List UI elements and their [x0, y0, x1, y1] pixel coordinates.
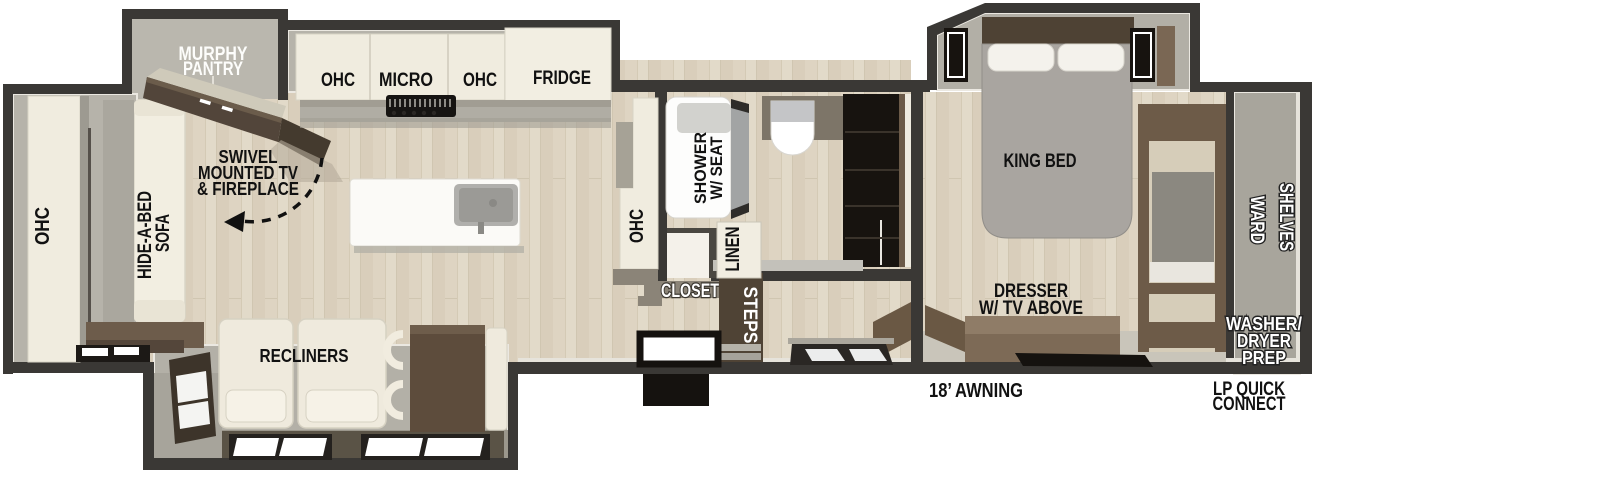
svg-text:OHC: OHC: [463, 70, 497, 91]
svg-text:PREP: PREP: [1242, 348, 1286, 368]
svg-text:CONNECT: CONNECT: [1213, 394, 1286, 415]
svg-text:STEPS: STEPS: [739, 287, 760, 344]
svg-text:CLOSET: CLOSET: [661, 281, 719, 302]
svg-text:W/ TV ABOVE: W/ TV ABOVE: [979, 298, 1083, 319]
svg-text:SHELVES: SHELVES: [1275, 183, 1296, 251]
svg-text:& FIREPLACE: & FIREPLACE: [197, 179, 299, 199]
svg-text:WARD: WARD: [1246, 196, 1267, 244]
svg-text:KING BED: KING BED: [1004, 151, 1077, 172]
svg-text:FRIDGE: FRIDGE: [533, 68, 591, 89]
svg-text:OHC: OHC: [32, 207, 54, 245]
svg-text:OHC: OHC: [627, 209, 648, 243]
svg-text:W/ SEAT: W/ SEAT: [707, 136, 726, 200]
svg-text:18’ AWNING: 18’ AWNING: [929, 380, 1023, 402]
svg-text:LINEN: LINEN: [723, 227, 744, 272]
svg-text:OHC: OHC: [321, 70, 355, 91]
svg-text:SOFA: SOFA: [153, 214, 174, 252]
svg-text:RECLINERS: RECLINERS: [260, 346, 349, 366]
svg-text:MICRO: MICRO: [379, 70, 433, 91]
